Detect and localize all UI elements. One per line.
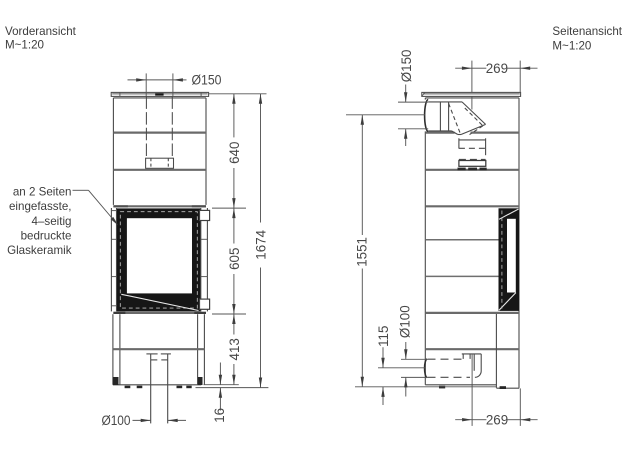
svg-text:16: 16 [212,408,227,423]
svg-text:Ø150: Ø150 [399,50,414,83]
svg-text:4–seitig: 4–seitig [32,215,72,228]
svg-text:413: 413 [227,338,242,360]
svg-text:269: 269 [486,412,508,427]
svg-text:bedruckte: bedruckte [21,229,72,242]
svg-text:eingefasste,: eingefasste, [9,200,72,213]
svg-text:640: 640 [227,142,242,164]
svg-text:Ø100: Ø100 [102,413,131,428]
svg-text:Ø100: Ø100 [398,305,413,338]
svg-text:1551: 1551 [355,237,370,267]
svg-text:1674: 1674 [253,229,268,259]
svg-text:269: 269 [486,61,508,76]
svg-text:Seitenansicht: Seitenansicht [552,25,622,38]
svg-text:an 2 Seiten: an 2 Seiten [13,186,72,199]
svg-text:M~1:20: M~1:20 [5,38,44,51]
svg-text:Vorderansicht: Vorderansicht [5,25,77,38]
svg-text:605: 605 [227,248,242,270]
svg-text:Glaskeramik: Glaskeramik [7,244,72,257]
svg-text:M~1:20: M~1:20 [552,40,591,53]
svg-text:115: 115 [376,326,391,347]
svg-text:Ø150: Ø150 [192,73,222,88]
